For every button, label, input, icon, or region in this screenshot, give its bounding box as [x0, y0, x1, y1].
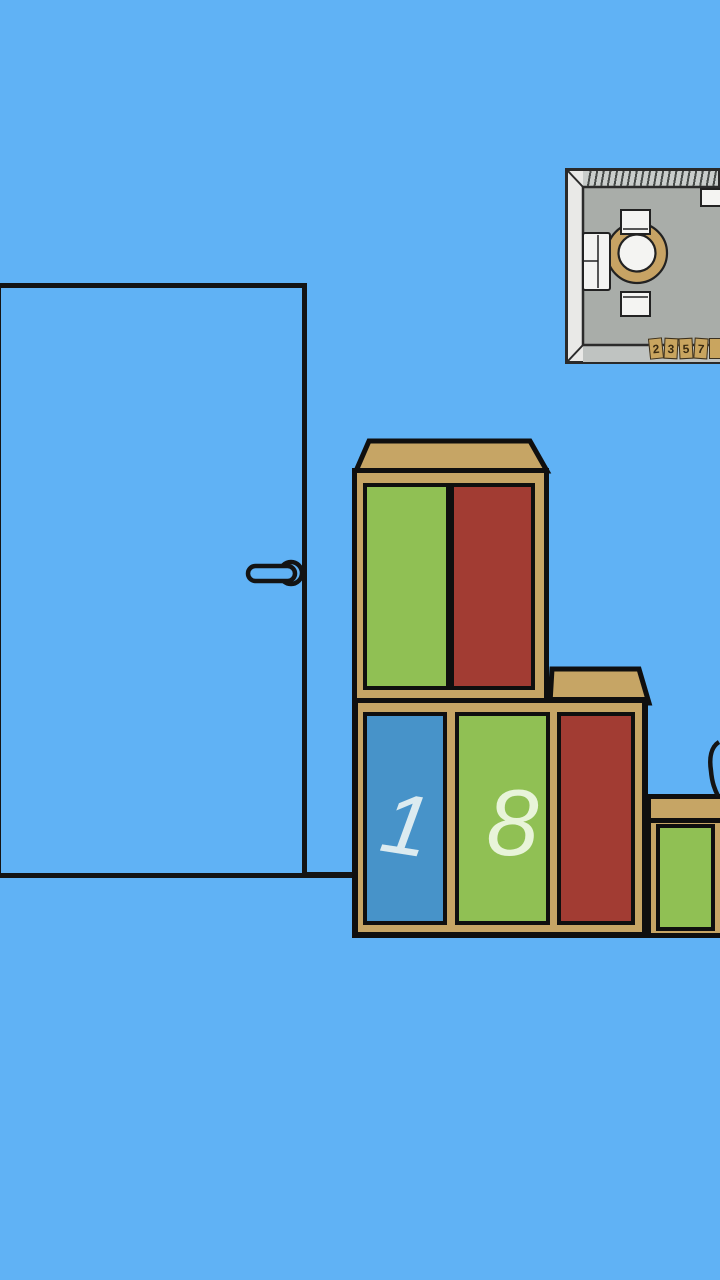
map-left-wall: [568, 171, 583, 361]
tile-digit: 3: [667, 342, 674, 354]
tile-digit: 2: [652, 342, 660, 355]
upper-panel-green[interactable]: [363, 483, 450, 690]
number-tile: 2: [648, 337, 664, 359]
number-tile: 5: [678, 338, 693, 360]
floorplan-map[interactable]: 2 3 5 7: [565, 168, 720, 364]
number-tile: 3: [663, 338, 678, 360]
lower-panel-red[interactable]: [557, 712, 635, 925]
wall-baseline: [305, 872, 353, 878]
offscreen-object-outline: [710, 742, 719, 796]
map-table-top: [619, 235, 656, 272]
map-railing-hatching: [585, 171, 718, 186]
floorplan-drawing: [565, 168, 720, 364]
upper-panel-red[interactable]: [450, 483, 535, 690]
number-tile-partial: [709, 338, 720, 359]
door-handle[interactable]: [244, 556, 308, 592]
map-chair-bottom: [621, 292, 650, 316]
panel-digit-8: 8: [486, 776, 538, 870]
game-scene: 2 3 5 7 1 8: [0, 0, 720, 1280]
panel-digit-1: 1: [376, 779, 437, 871]
upper-shelf-top-face: [356, 441, 547, 471]
door-handle-lever: [248, 566, 295, 581]
map-chair-top: [621, 210, 650, 234]
lower-panel-green[interactable]: 8: [455, 712, 550, 925]
tile-digit: 7: [697, 342, 705, 354]
offscreen-object-edge: [702, 738, 720, 800]
lower-panel-blue[interactable]: 1: [363, 712, 447, 925]
number-tile: 7: [693, 338, 708, 360]
tile-digit: 5: [682, 342, 689, 354]
map-counter: [701, 189, 720, 206]
side-panel-green[interactable]: [656, 824, 715, 931]
